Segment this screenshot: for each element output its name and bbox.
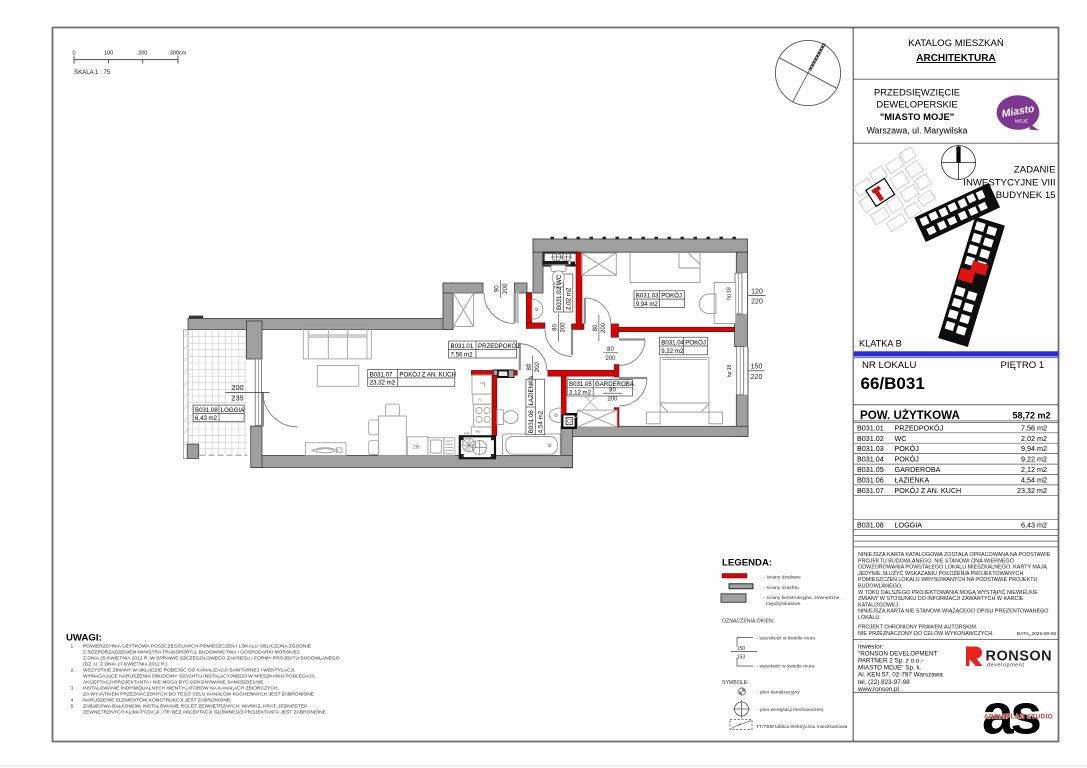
svg-text:2,12 m2: 2,12 m2 xyxy=(1021,465,1047,474)
svg-text:KATALOG MIESZKAŃ: KATALOG MIESZKAŃ xyxy=(908,38,1004,49)
svg-text:4,54 m2: 4,54 m2 xyxy=(538,410,545,433)
svg-text:POKÓJ: POKÓJ xyxy=(895,455,920,464)
svg-text:- ściany konstrukcyjne, zewnęt: - ściany konstrukcyjne, zewnętrzne, xyxy=(764,595,841,601)
svg-text:W TOKU DALSZEGO PROJEKTOWANIA: W TOKU DALSZEGO PROJEKTOWANIA MOGĄ WYSTĄ… xyxy=(858,589,1038,596)
svg-text:wo: wo xyxy=(476,430,481,434)
svg-text:(DZ. U. Z DNIA 27 KWIETNIA 201: (DZ. U. Z DNIA 27 KWIETNIA 2012 R.) xyxy=(83,662,168,668)
svg-text:B031.06: B031.06 xyxy=(857,475,884,484)
svg-text:ZM: ZM xyxy=(413,445,420,451)
svg-text:B031.08: B031.08 xyxy=(195,407,218,414)
svg-text:POKÓJ Z AN. KUCH: POKÓJ Z AN. KUCH xyxy=(895,486,962,495)
svg-text:150: 150 xyxy=(751,364,763,371)
svg-text:4,54 m2: 4,54 m2 xyxy=(1021,475,1047,484)
svg-text:międzylokalowe: międzylokalowe xyxy=(766,601,801,607)
svg-text:9,22 m2: 9,22 m2 xyxy=(1021,455,1047,464)
svg-text:B031.01: B031.01 xyxy=(857,423,884,432)
svg-text:PROJEKT CHRONIONY PRAWEM AUTOR: PROJEKT CHRONIONY PRAWEM AUTORSKIM. xyxy=(858,625,977,631)
svg-text:SKALA 1 : 75: SKALA 1 : 75 xyxy=(74,69,111,76)
svg-text:NINIEJSZA KARTA NIE STANOWI WI: NINIEJSZA KARTA NIE STANOWI WIĄŻĄCEGO OP… xyxy=(858,608,1049,615)
svg-text:NR LOKALU: NR LOKALU xyxy=(862,360,916,371)
svg-text:ZEWNĘTRZNYCH KLIMATYZACJI, ITP: ZEWNĘTRZNYCH KLIMATYZACJI, ITP. BEZ AKCE… xyxy=(83,709,327,716)
svg-text:23,32 m2: 23,32 m2 xyxy=(370,380,396,387)
svg-text:PARTNER 2 Sp. z o.o.-: PARTNER 2 Sp. z o.o.- xyxy=(858,658,923,665)
svg-text:- wysokość w świetle muru: - wysokość w świetle muru xyxy=(757,664,815,670)
svg-text:POWIERZCHNIA UŻYTKOWA POSZCZEG: POWIERZCHNIA UŻYTKOWA POSZCZEGÓLNYCH POM… xyxy=(83,643,312,650)
svg-text:LOGGIA: LOGGIA xyxy=(221,407,245,414)
svg-text:tel. (22) 823-97-98: tel. (22) 823-97-98 xyxy=(858,679,910,686)
svg-text:80: 80 xyxy=(553,324,559,331)
svg-text:NIE PRZEZNACZONY DO CELÓW WYKO: NIE PRZEZNACZONY DO CELÓW WYKONAWCZYCH. xyxy=(858,630,994,637)
svg-text:PL: PL xyxy=(478,398,482,402)
svg-text:KATALOGOWEJ.: KATALOGOWEJ. xyxy=(858,602,900,608)
svg-text:200: 200 xyxy=(535,362,541,373)
svg-text:INWESTYCYJNE VIII: INWESTYCYJNE VIII xyxy=(963,178,1055,189)
svg-text:ŁAZIENKA: ŁAZIENKA xyxy=(895,475,930,484)
svg-text:7,56 m2: 7,56 m2 xyxy=(1021,423,1047,432)
svg-text:NARUSZENIE ELEMENTÓW KONSTRUKC: NARUSZENIE ELEMENTÓW KONSTRUKCJI JEST ZA… xyxy=(83,697,231,704)
svg-text:www.ronson.pl: www.ronson.pl xyxy=(857,686,899,693)
svg-text:- pion wentylacji mechanicznej: - pion wentylacji mechanicznej xyxy=(757,707,823,713)
svg-text:9,94 m2: 9,94 m2 xyxy=(636,301,659,308)
svg-text:TT/TBM tablica elektryczna: TT/TBM tablica elektryczna mieszkaniowa xyxy=(756,724,848,730)
svg-text:200: 200 xyxy=(138,50,147,56)
svg-text:BUDYNEK 15: BUDYNEK 15 xyxy=(996,190,1056,201)
svg-text:B031.05: B031.05 xyxy=(569,381,592,388)
svg-text:150: 150 xyxy=(737,646,746,652)
svg-text:9,22 m2: 9,22 m2 xyxy=(661,348,684,355)
svg-text:POMIESZCZEŃ LOKALU WRYSOWANYCH: POMIESZCZEŃ LOKALU WRYSOWANYCH NA PODSTA… xyxy=(858,576,1038,583)
svg-text:1.: 1. xyxy=(71,644,75,650)
svg-text:2,02 m2: 2,02 m2 xyxy=(1021,434,1047,443)
svg-text:PRZEDSIĘWZIĘCIE: PRZEDSIĘWZIĘCIE xyxy=(874,87,960,98)
svg-text:B031.03: B031.03 xyxy=(857,444,884,453)
svg-text:7,56 m2: 7,56 m2 xyxy=(451,351,474,358)
svg-text:ZABUDOWA BALKONÓW, INSTALOWANI: ZABUDOWA BALKONÓW, INSTALOWANIE ROLET ZE… xyxy=(83,703,308,710)
svg-text:BUDOWLANEGO.: BUDOWLANEGO. xyxy=(858,584,903,590)
svg-text:WYMAGAJĄCE NARUSZENIA OBUDOWY: WYMAGAJĄCE NARUSZENIA OBUDOWY SZACHTU IN… xyxy=(83,674,316,680)
svg-text:100: 100 xyxy=(104,50,113,56)
svg-text:5.: 5. xyxy=(71,704,75,710)
svg-text:LEGENDA:: LEGENDA: xyxy=(722,558,772,569)
svg-text:development: development xyxy=(987,663,1024,669)
svg-text:B031.07: B031.07 xyxy=(370,371,393,378)
svg-text:ZMIANY W STOSUNKU DO INFORMACJ: ZMIANY W STOSUNKU DO INFORMACJI ZAWARTYC… xyxy=(858,596,1024,602)
svg-text:4.: 4. xyxy=(71,698,75,704)
svg-text:80: 80 xyxy=(607,347,614,353)
svg-text:Inwestor:: Inwestor: xyxy=(858,643,884,650)
svg-text:3.: 3. xyxy=(71,686,75,692)
svg-text:200: 200 xyxy=(607,396,618,402)
svg-text:- szerokość w świetle muru: - szerokość w świetle muru xyxy=(757,636,816,642)
svg-text:80: 80 xyxy=(609,388,616,394)
svg-text:POKÓJ: POKÓJ xyxy=(661,293,682,300)
svg-text:hp:18: hp:18 xyxy=(727,365,733,378)
svg-text:UWAGI:: UWAGI: xyxy=(66,633,102,644)
svg-text:B031.01: B031.01 xyxy=(451,343,474,350)
svg-text:220: 220 xyxy=(751,374,763,381)
svg-text:LOGGIA: LOGGIA xyxy=(895,520,923,529)
svg-text:OZNACZENIA OKIEN:: OZNACZENIA OKIEN: xyxy=(722,619,774,625)
svg-text:PRZEDPOKÓJ: PRZEDPOKÓJ xyxy=(478,343,519,350)
svg-text:B031.07: B031.07 xyxy=(857,486,884,495)
svg-text:58,72 m2: 58,72 m2 xyxy=(1012,411,1050,421)
svg-text:2,02 m2: 2,02 m2 xyxy=(566,287,573,310)
svg-text:B031.02: B031.02 xyxy=(857,434,884,443)
svg-text:200: 200 xyxy=(231,383,243,392)
svg-text:LOKALU.: LOKALU. xyxy=(858,615,881,621)
svg-text:120: 120 xyxy=(751,288,763,295)
svg-text:NINIEJSZA KARTA KATALOGOWA ZOS: NINIEJSZA KARTA KATALOGOWA ZOSTAŁA OPRAC… xyxy=(858,552,1051,558)
svg-text:PIĘTRO 1: PIĘTRO 1 xyxy=(1001,360,1045,371)
svg-text:0: 0 xyxy=(72,50,75,56)
svg-text:Z ROZPORZĄDZENIEM MINISTRA TRA: Z ROZPORZĄDZENIEM MINISTRA TRANSPORTU, B… xyxy=(83,650,300,656)
svg-text:200: 200 xyxy=(503,283,509,294)
svg-text:"MIASTO MOJE": "MIASTO MOJE" xyxy=(880,111,954,122)
svg-text:235: 235 xyxy=(231,394,243,403)
svg-text:6,43 m2: 6,43 m2 xyxy=(1021,520,1047,529)
svg-text:PRZEDPOKÓJ: PRZEDPOKÓJ xyxy=(895,423,944,432)
svg-text:wd: wd xyxy=(464,432,469,436)
svg-text:Warszawa, ul. Marywilska: Warszawa, ul. Marywilska xyxy=(867,125,968,135)
svg-text:B031.04: B031.04 xyxy=(661,339,684,346)
svg-text:"RONSON DEVELOPMENT: "RONSON DEVELOPMENT xyxy=(858,650,937,657)
svg-text:KLATKA B: KLATKA B xyxy=(859,339,902,349)
svg-text:153: 153 xyxy=(737,655,746,661)
svg-text:ZADANIE: ZADANIE xyxy=(1014,165,1056,176)
svg-text:POKÓJ: POKÓJ xyxy=(895,444,920,453)
svg-text:- pion kanalizacyjny: - pion kanalizacyjny xyxy=(757,690,800,696)
svg-text:B031.03: B031.03 xyxy=(636,293,659,300)
svg-text:2.: 2. xyxy=(71,668,75,674)
svg-text:hp:18: hp:18 xyxy=(727,287,733,300)
svg-text:200: 200 xyxy=(605,356,616,362)
svg-text:POKÓJ Z AN. KUCH: POKÓJ Z AN. KUCH xyxy=(399,371,456,378)
svg-text:ODWZOROWANIA POWSTAŁEGO LOKALU: ODWZOROWANIA POWSTAŁEGO LOKALU MIESZKALN… xyxy=(858,565,1047,571)
svg-text:ŁAZIENKA: ŁAZIENKA xyxy=(528,375,535,406)
svg-text:MOJE: MOJE xyxy=(1015,118,1028,124)
svg-text:9,94 m2: 9,94 m2 xyxy=(1021,444,1047,453)
svg-text:- ściany działowe: - ściany działowe xyxy=(764,575,802,581)
svg-text:GARDEROBA: GARDEROBA xyxy=(895,465,941,474)
svg-text:WC: WC xyxy=(556,274,563,285)
svg-text:300cm: 300cm xyxy=(170,50,187,56)
svg-text:POW. UŻYTKOWA: POW. UŻYTKOWA xyxy=(860,409,960,422)
svg-text:ARCHITEKTURA: ARCHITEKTURA xyxy=(916,53,995,64)
svg-text:- ściany szachtu: - ściany szachtu xyxy=(764,585,799,591)
svg-text:B031.04: B031.04 xyxy=(857,455,884,464)
svg-text:66/B031: 66/B031 xyxy=(861,374,925,393)
svg-text:ZA WYJĄTKIEM PRZEZNACZONYCH DO: ZA WYJĄTKIEM PRZEZNACZONYCH DO TEGO CELU… xyxy=(83,691,315,698)
svg-text:B031.08: B031.08 xyxy=(857,520,884,529)
svg-text:Z DNIA 25 KWIETNIA 2012 R. W S: Z DNIA 25 KWIETNIA 2012 R. W SPRAWIE SZC… xyxy=(83,655,340,662)
svg-text:WC: WC xyxy=(895,434,907,443)
svg-text:Al. KEN 57, 02-797 Warszawa: Al. KEN 57, 02-797 Warszawa xyxy=(858,672,943,679)
svg-text:ARCHIPLAN STUDIO: ARCHIPLAN STUDIO xyxy=(984,714,1053,721)
svg-text:PROJEKTU BUDOWLANEGO. NIE STAN: PROJEKTU BUDOWLANEGO. NIE STANOWI ONA WI… xyxy=(858,558,1014,564)
svg-text:DATA_2025-08-08: DATA_2025-08-08 xyxy=(1017,631,1057,637)
svg-text:DEWELOPERSKIE: DEWELOPERSKIE xyxy=(876,99,957,110)
svg-text:220: 220 xyxy=(751,299,763,306)
svg-text:6,43 m2: 6,43 m2 xyxy=(195,415,218,422)
svg-text:B031.06: B031.06 xyxy=(528,410,535,434)
svg-text:B031.02: B031.02 xyxy=(556,286,563,310)
svg-text:80: 80 xyxy=(527,363,533,370)
svg-text:80: 80 xyxy=(593,324,599,331)
svg-text:B031.05: B031.05 xyxy=(857,465,884,474)
svg-text:INSTALOWANIE INDYWIDUALNYCH WE: INSTALOWANIE INDYWIDUALNYCH WENTYLATORÓW… xyxy=(83,685,279,692)
svg-text:POKÓJ: POKÓJ xyxy=(685,339,706,346)
svg-text:JEDYNIE SŁUŻYĆ WSKAZANIU POŁOŻ: JEDYNIE SŁUŻYĆ WSKAZANIU POŁOŻENIA PROJE… xyxy=(858,570,1023,577)
svg-text:23,32 m2: 23,32 m2 xyxy=(1017,486,1047,495)
svg-text:200: 200 xyxy=(601,322,607,333)
svg-text:200: 200 xyxy=(561,322,567,333)
svg-text:SYMBOLE:: SYMBOLE: xyxy=(722,680,749,686)
svg-text:AKCEPTACJI PROJEKTANTA I NIE M: AKCEPTACJI PROJEKTANTA I NIE MOGĄ BYĆ DO… xyxy=(83,679,264,686)
svg-text:2,12 m2: 2,12 m2 xyxy=(569,389,592,396)
svg-text:MIASTO MOJE" Sp. k.: MIASTO MOJE" Sp. k. xyxy=(858,665,922,672)
svg-text:90: 90 xyxy=(495,285,501,292)
